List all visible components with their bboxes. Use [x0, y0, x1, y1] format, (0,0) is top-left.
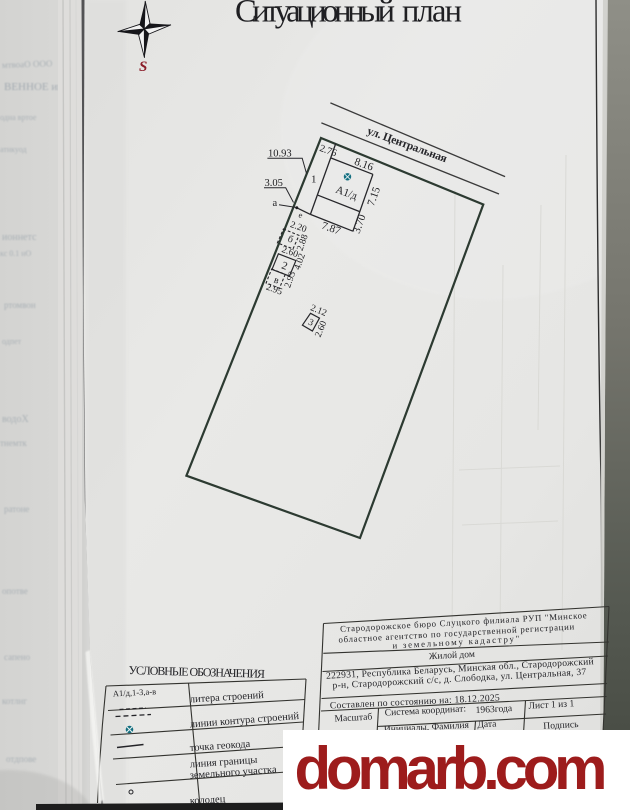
- svg-text:опотве: опотве: [2, 586, 28, 596]
- svg-text:отдпове: отдпове: [6, 754, 36, 764]
- svg-text:1: 1: [311, 174, 317, 186]
- svg-text:Ситуационный: Ситуационный: [235, 0, 395, 29]
- svg-text:ртомвон: ртомвон: [4, 300, 36, 310]
- svg-text:S: S: [139, 59, 147, 75]
- svg-text:Масштаб: Масштаб: [334, 712, 373, 725]
- svg-text:ионнетс: ионнетс: [2, 232, 37, 243]
- svg-text:ратоне: ратоне: [4, 504, 29, 514]
- svg-text:Дата: Дата: [477, 718, 497, 730]
- svg-text:водоХ: водоХ: [2, 414, 29, 425]
- svg-text:одна вртое: одна вртое: [0, 113, 37, 122]
- svg-text:сапено: сапено: [4, 652, 31, 662]
- svg-text:план: план: [402, 0, 462, 29]
- svg-text:котлнг: котлнг: [2, 696, 27, 706]
- svg-text:кс 0.1 нО: кс 0.1 нО: [0, 249, 32, 258]
- svg-text:одпет: одпет: [2, 337, 22, 346]
- svg-text:а: а: [273, 198, 278, 209]
- svg-text:domarb.com: domarb.com: [295, 735, 608, 802]
- svg-text:тнемтк: тнемтк: [0, 438, 27, 448]
- svg-text:Подпись: Подпись: [543, 719, 579, 732]
- svg-text:мтвоаО ООО: мтвоаО ООО: [2, 58, 53, 70]
- svg-text:атнкуод: атнкуод: [0, 145, 27, 154]
- svg-text:1963года: 1963года: [475, 703, 513, 716]
